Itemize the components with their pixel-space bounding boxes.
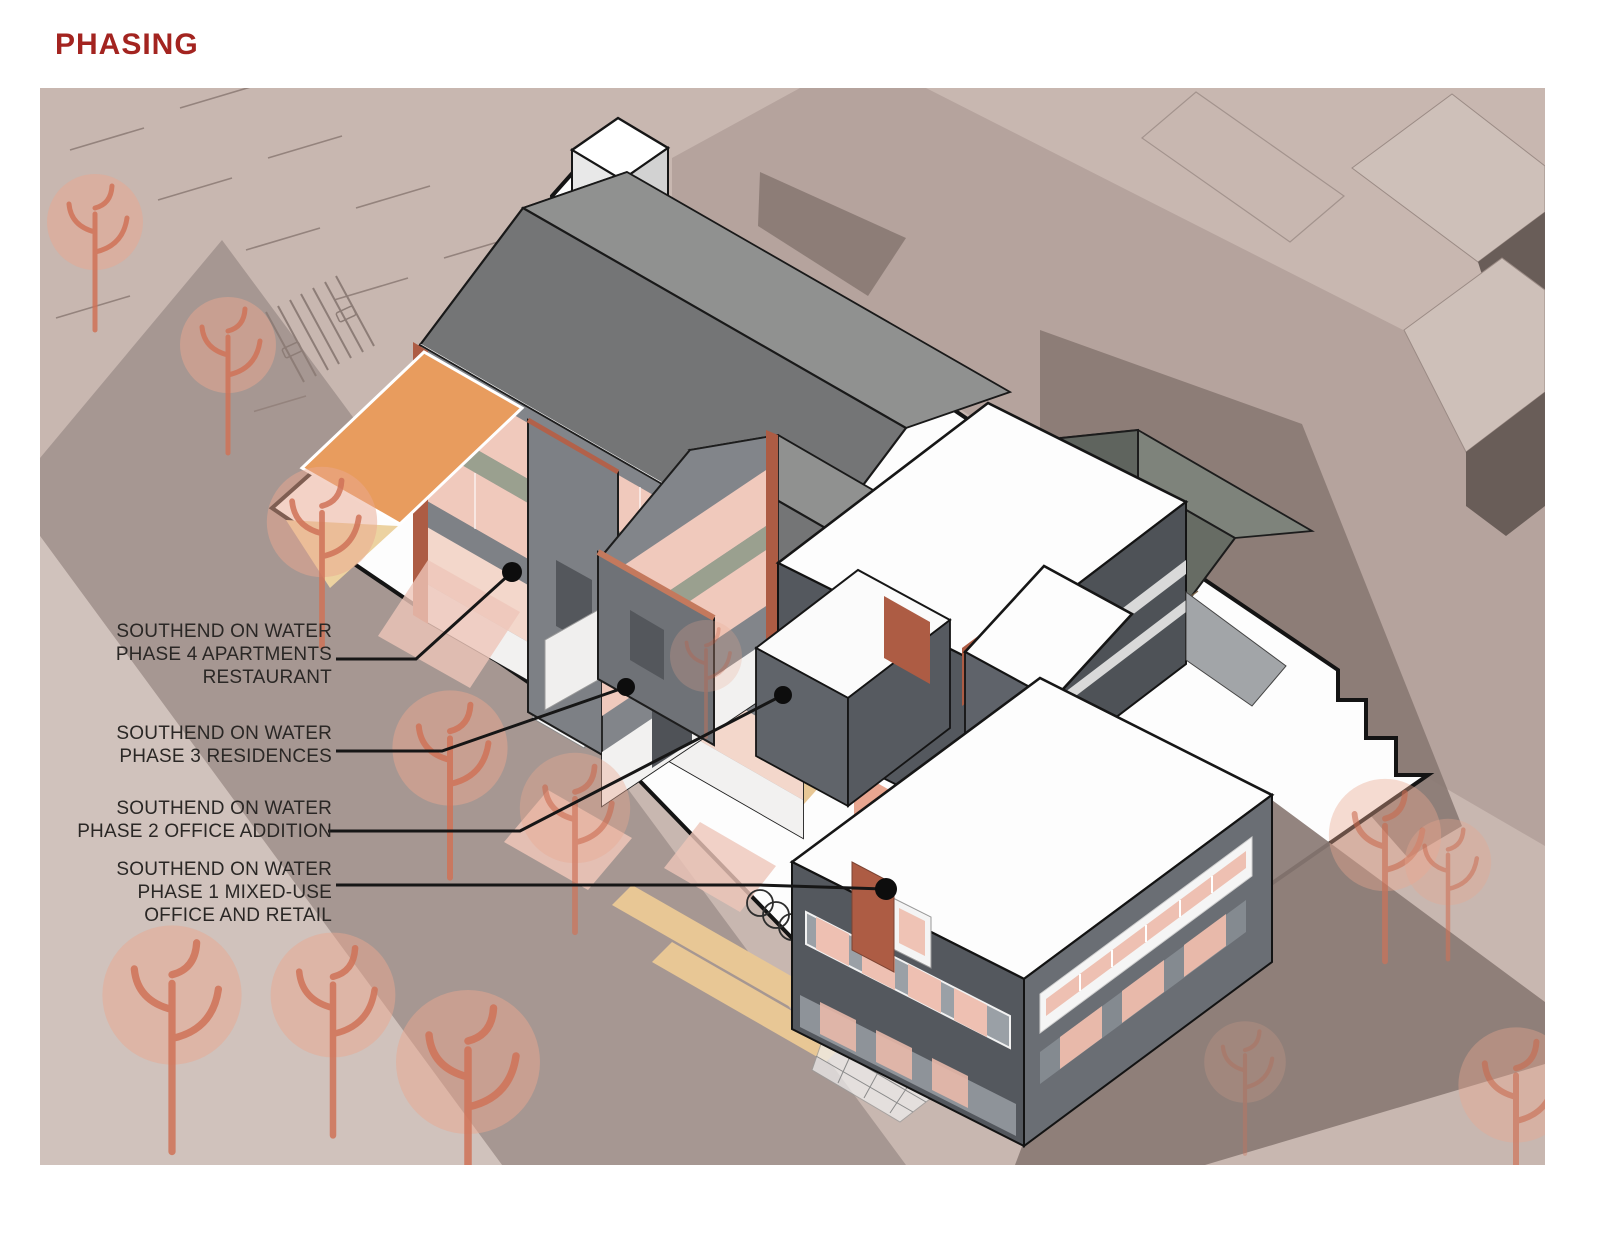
- label-line: SOUTHEND ON WATER: [40, 722, 332, 745]
- label-line: PHASE 3 RESIDENCES: [40, 745, 332, 768]
- label-line: SOUTHEND ON WATER: [40, 620, 332, 643]
- label-line: PHASE 4 APARTMENTS: [40, 643, 332, 666]
- leader-dot-phase-2: [774, 686, 792, 704]
- leader-dot-phase-3: [617, 678, 635, 696]
- label-line: RESTAURANT: [40, 666, 332, 689]
- leader-dot-phase-1: [875, 878, 897, 900]
- label-line: PHASE 2 OFFICE ADDITION: [40, 820, 332, 843]
- label-phase-1: SOUTHEND ON WATER PHASE 1 MIXED-USE OFFI…: [40, 858, 332, 927]
- page-title: PHASING: [55, 28, 199, 62]
- label-line: PHASE 1 MIXED-USE: [40, 881, 332, 904]
- phasing-sheet: PHASING: [0, 0, 1600, 1236]
- leader-dot-phase-4: [502, 562, 522, 582]
- label-line: OFFICE AND RETAIL: [40, 904, 332, 927]
- label-line: SOUTHEND ON WATER: [40, 797, 332, 820]
- label-phase-3: SOUTHEND ON WATER PHASE 3 RESIDENCES: [40, 722, 332, 768]
- axonometric-scene: SOUTHEND ON WATER PHASE 4 APARTMENTS RES…: [40, 88, 1545, 1165]
- label-line: SOUTHEND ON WATER: [40, 858, 332, 881]
- label-phase-2: SOUTHEND ON WATER PHASE 2 OFFICE ADDITIO…: [40, 797, 332, 843]
- label-phase-4: SOUTHEND ON WATER PHASE 4 APARTMENTS RES…: [40, 620, 332, 689]
